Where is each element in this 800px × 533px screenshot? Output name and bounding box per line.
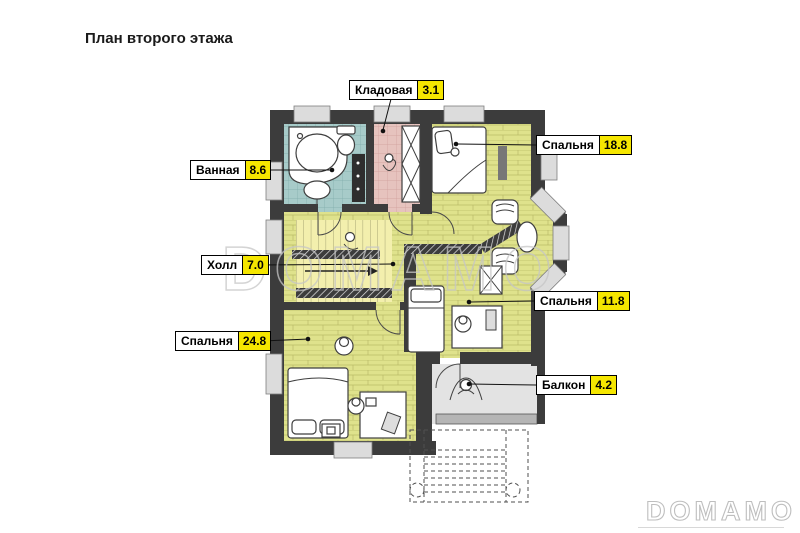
room-label-balcony-area: 4.2 — [591, 375, 617, 395]
toilet-icon — [337, 126, 355, 155]
room-label-storage: Кладовая 3.1 — [349, 80, 444, 100]
room-label-bedroom-18-area: 18.8 — [600, 135, 632, 155]
bathroom-cabinet — [352, 154, 365, 202]
room-label-balcony: Балкон 4.2 — [536, 375, 617, 395]
balcony-floor — [432, 364, 537, 424]
storage-wardrobe — [402, 126, 420, 202]
room-label-bathroom-area: 8.6 — [246, 160, 272, 180]
wardrobe-bedroom-11 — [480, 266, 502, 294]
room-label-bedroom-24-area: 24.8 — [239, 331, 271, 351]
room-label-balcony-name: Балкон — [536, 375, 591, 395]
tv-stand — [322, 424, 340, 437]
room-label-bedroom-24: Спальня 24.8 — [175, 331, 271, 351]
room-label-bedroom-24-name: Спальня — [175, 331, 239, 351]
room-label-bedroom-11: Спальня 11.8 — [534, 291, 630, 311]
room-label-hall-name: Холл — [201, 255, 243, 275]
room-label-bedroom-11-name: Спальня — [534, 291, 598, 311]
room-label-bedroom-11-area: 11.8 — [598, 291, 630, 311]
bathtub — [289, 127, 347, 184]
single-bed — [408, 286, 444, 352]
room-label-bathroom-name: Ванная — [190, 160, 246, 180]
dresser — [498, 146, 507, 180]
armchair-with-person — [335, 337, 353, 355]
desk-bedroom-11 — [452, 306, 502, 348]
room-label-bathroom: Ванная 8.6 — [190, 160, 271, 180]
staircase — [292, 220, 392, 302]
double-bed-top — [432, 127, 486, 193]
room-label-hall-area: 7.0 — [243, 255, 269, 275]
floor-plan-page: План второго этажа — [0, 0, 800, 533]
room-label-storage-name: Кладовая — [349, 80, 418, 100]
watermark-underline — [638, 527, 784, 528]
room-label-hall: Холл 7.0 — [201, 255, 269, 275]
room-label-storage-area: 3.1 — [418, 80, 444, 100]
room-label-bedroom-18: Спальня 18.8 — [536, 135, 632, 155]
room-label-bedroom-18-name: Спальня — [536, 135, 600, 155]
